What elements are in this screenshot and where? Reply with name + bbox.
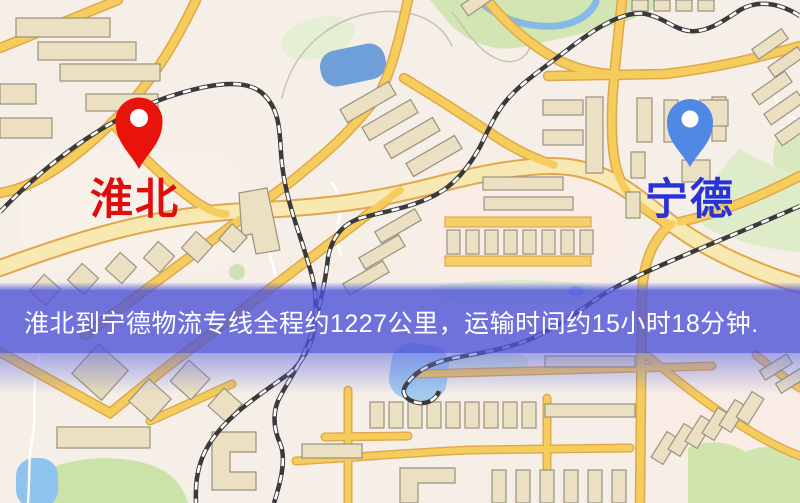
map-canvas[interactable] bbox=[0, 0, 800, 503]
map-screenshot: 淮北 宁德 淮北到宁德物流专线全程约1227公里，运输时间约15小时18分钟. bbox=[0, 0, 800, 503]
destination-city-label: 宁德 bbox=[645, 179, 735, 222]
origin-city-label: 淮北 bbox=[90, 179, 180, 222]
